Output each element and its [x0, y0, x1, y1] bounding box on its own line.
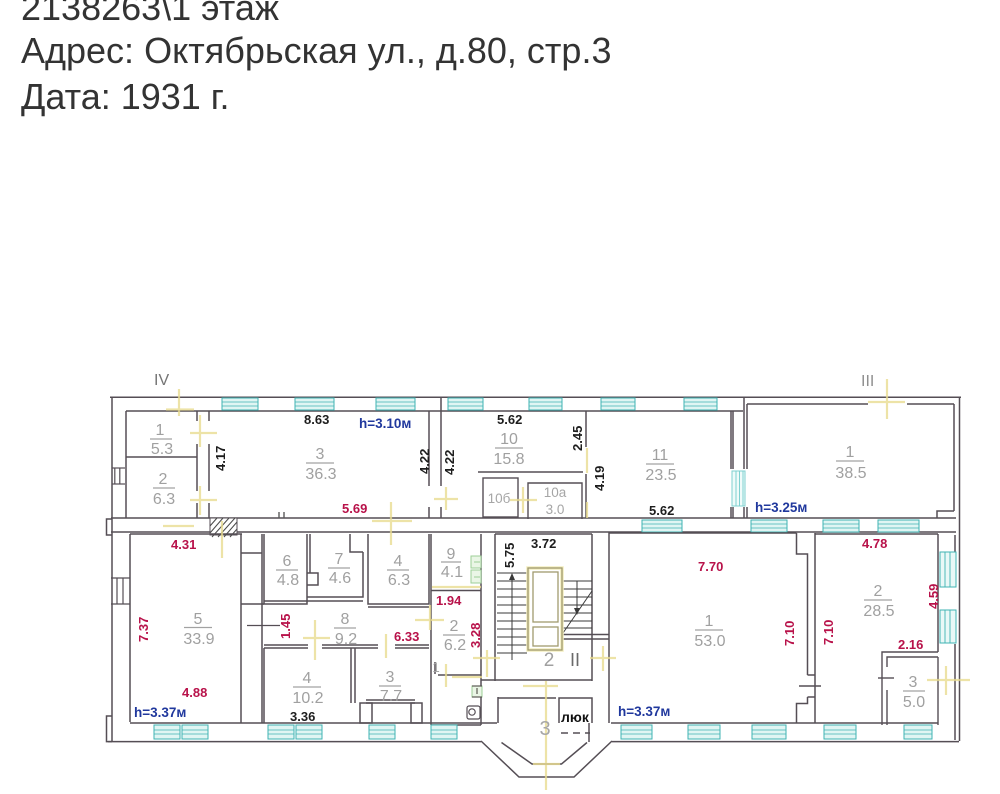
svg-text:6.2: 6.2 — [444, 637, 466, 654]
svg-text:4.6: 4.6 — [329, 570, 351, 587]
svg-text:4.19: 4.19 — [592, 466, 607, 491]
svg-text:4: 4 — [394, 553, 403, 570]
svg-text:3.36: 3.36 — [290, 709, 315, 724]
svg-text:3: 3 — [539, 718, 550, 740]
svg-text:2: 2 — [450, 618, 459, 635]
svg-text:7.10: 7.10 — [821, 620, 836, 645]
svg-text:1: 1 — [846, 444, 855, 461]
svg-text:6.3: 6.3 — [153, 491, 175, 508]
svg-text:23.5: 23.5 — [645, 467, 676, 484]
svg-text:1: 1 — [432, 660, 440, 675]
svg-text:7.7: 7.7 — [380, 688, 402, 705]
svg-text:10а: 10а — [544, 485, 567, 500]
svg-text:38.5: 38.5 — [835, 465, 866, 482]
svg-text:3.72: 3.72 — [531, 536, 556, 551]
svg-text:IV: IV — [154, 372, 169, 389]
svg-text:3.0: 3.0 — [546, 502, 565, 517]
svg-text:33.9: 33.9 — [183, 631, 214, 648]
svg-text:7: 7 — [335, 551, 344, 568]
svg-text:5: 5 — [194, 611, 203, 628]
svg-text:4.1: 4.1 — [441, 564, 463, 581]
svg-text:4.22: 4.22 — [417, 449, 432, 474]
svg-text:5.3: 5.3 — [151, 441, 173, 458]
svg-text:4: 4 — [303, 670, 312, 687]
svg-text:люк: люк — [561, 709, 590, 725]
svg-text:4.88: 4.88 — [182, 685, 207, 700]
svg-text:4.22: 4.22 — [442, 450, 457, 475]
svg-text:3: 3 — [909, 674, 918, 691]
svg-text:6: 6 — [283, 553, 292, 570]
svg-text:3: 3 — [386, 669, 395, 686]
svg-text:2: 2 — [544, 650, 555, 671]
svg-text:1: 1 — [705, 613, 714, 630]
svg-text:h=3.25м: h=3.25м — [755, 500, 807, 515]
svg-text:II: II — [570, 650, 580, 670]
svg-text:15.8: 15.8 — [493, 451, 524, 468]
svg-text:h=3.37м: h=3.37м — [618, 704, 670, 719]
svg-text:5.69: 5.69 — [342, 501, 367, 516]
svg-text:4.17: 4.17 — [213, 446, 228, 471]
svg-text:2.45: 2.45 — [570, 426, 585, 451]
svg-text:28.5: 28.5 — [863, 603, 894, 620]
svg-text:4.78: 4.78 — [862, 536, 887, 551]
svg-text:4.8: 4.8 — [277, 572, 299, 589]
svg-text:4.31: 4.31 — [171, 537, 196, 552]
svg-text:III: III — [861, 373, 874, 390]
svg-text:2: 2 — [159, 471, 168, 488]
svg-text:10.2: 10.2 — [292, 690, 323, 707]
svg-text:7.37: 7.37 — [136, 617, 151, 642]
svg-text:7.70: 7.70 — [698, 559, 723, 574]
svg-text:2.16: 2.16 — [898, 637, 923, 652]
svg-text:11: 11 — [652, 447, 669, 464]
svg-text:h=3.10м: h=3.10м — [359, 416, 411, 431]
svg-text:1.45: 1.45 — [278, 614, 293, 639]
svg-text:36.3: 36.3 — [305, 466, 336, 483]
svg-text:8: 8 — [341, 611, 350, 628]
svg-text:6.33: 6.33 — [394, 629, 419, 644]
svg-text:10: 10 — [500, 431, 518, 448]
svg-text:53.0: 53.0 — [694, 633, 725, 650]
svg-text:4.59: 4.59 — [926, 584, 941, 609]
svg-text:5.62: 5.62 — [649, 503, 674, 518]
svg-text:6.3: 6.3 — [388, 572, 410, 589]
svg-text:8.63: 8.63 — [304, 412, 329, 427]
svg-text:5.0: 5.0 — [903, 694, 925, 711]
svg-text:10б: 10б — [488, 491, 511, 506]
svg-text:3: 3 — [316, 446, 325, 463]
svg-text:1.94: 1.94 — [436, 593, 462, 608]
svg-text:5.75: 5.75 — [502, 543, 517, 568]
svg-text:5.62: 5.62 — [497, 412, 522, 427]
svg-text:h=3.37м: h=3.37м — [134, 705, 186, 720]
svg-text:7.10: 7.10 — [782, 621, 797, 646]
svg-text:9.2: 9.2 — [335, 631, 357, 648]
svg-text:2: 2 — [874, 583, 883, 600]
svg-text:1: 1 — [156, 422, 165, 439]
svg-text:3.28: 3.28 — [468, 623, 483, 648]
svg-text:9: 9 — [447, 546, 456, 563]
